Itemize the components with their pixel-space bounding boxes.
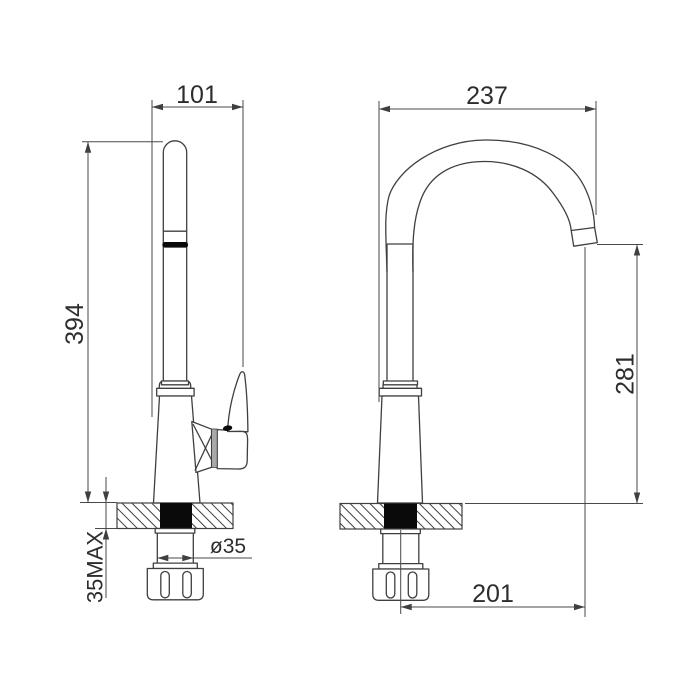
technical-drawing-page: 101 237 394 35MAX ø35 281 201 bbox=[0, 0, 700, 700]
technical-drawing-canvas: 101 237 394 35MAX ø35 281 201 bbox=[0, 0, 700, 700]
mounting-nut-front bbox=[147, 569, 203, 600]
mixer-body-front bbox=[154, 396, 201, 503]
dimension-label-237: 237 bbox=[466, 82, 508, 110]
handle-lever-blade bbox=[228, 372, 248, 432]
dimension-label-281: 281 bbox=[612, 353, 640, 395]
base-flange-side bbox=[379, 388, 421, 396]
gooseneck-inner-edge bbox=[413, 161, 571, 272]
dimension-outlet-height: 281 bbox=[465, 245, 643, 504]
countertop-sections bbox=[117, 503, 462, 529]
extension-line bbox=[379, 101, 596, 402]
extension-line bbox=[401, 247, 585, 617]
dimension-label-394: 394 bbox=[61, 303, 89, 345]
dimension-label-o35: ø35 bbox=[210, 535, 246, 558]
aerator-face bbox=[162, 242, 188, 248]
mounting-hole-front bbox=[160, 503, 192, 529]
spout-outlet-tip bbox=[571, 228, 597, 247]
mounting-hardware-front bbox=[147, 529, 203, 600]
side-view bbox=[378, 140, 598, 503]
washer-front bbox=[155, 529, 195, 534]
dimension-spout-reach: 201 bbox=[401, 247, 585, 617]
dimension-label-201: 201 bbox=[472, 580, 514, 608]
dimension-total-height: 394 bbox=[61, 142, 163, 503]
cartridge-ring bbox=[212, 429, 218, 467]
shank-ring-front bbox=[153, 563, 197, 568]
dimension-label-101: 101 bbox=[176, 81, 218, 109]
handle-grip bbox=[217, 430, 247, 469]
mixer-body-side bbox=[378, 396, 423, 503]
spout-tube-front bbox=[163, 141, 186, 381]
dimension-arc-width: 237 bbox=[379, 82, 596, 402]
collar-band-front bbox=[162, 381, 189, 385]
extension-line bbox=[80, 142, 163, 503]
base-flange-front bbox=[157, 388, 194, 396]
mounting-hole-side bbox=[384, 504, 417, 530]
dimension-label-35max: 35MAX bbox=[83, 531, 108, 603]
collar-band-side bbox=[383, 381, 417, 385]
front-view bbox=[154, 141, 248, 503]
gooseneck-outer-edge bbox=[386, 140, 595, 272]
valve-housing-wedge bbox=[192, 422, 212, 473]
